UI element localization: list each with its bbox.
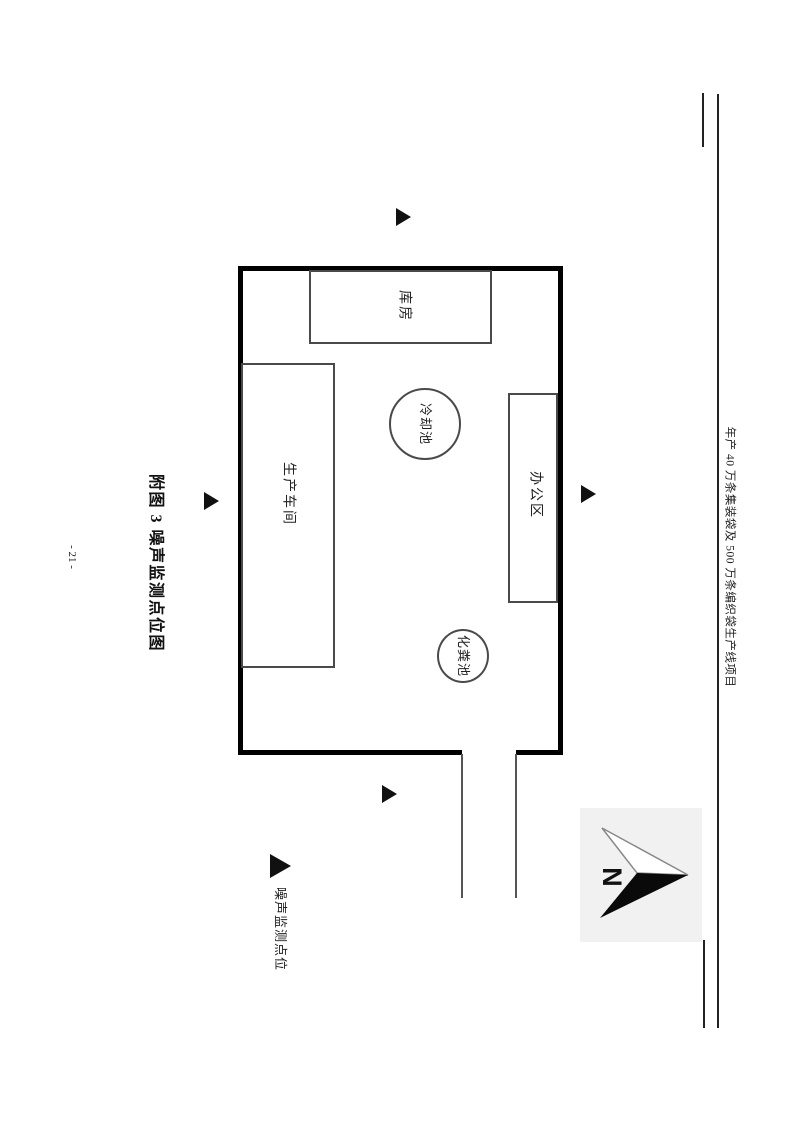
legend-noise-point-icon: [270, 854, 291, 878]
driveway-line-right: [515, 754, 517, 898]
north-arrow: N: [580, 808, 702, 942]
noise-monitoring-point-icon: [382, 785, 397, 803]
north-arrow-icon: N: [580, 808, 702, 942]
legend-label: 噪声监测点位: [273, 887, 287, 971]
footer-rule-bottom-mark: [703, 940, 705, 1028]
noise-monitoring-point-icon: [396, 208, 411, 226]
header-rule-top-mark: [702, 93, 704, 147]
cooling-pool-label: 冷却池: [418, 403, 432, 445]
septic-tank-label: 化粪池: [456, 635, 470, 677]
warehouse-label: 库房: [396, 290, 411, 322]
office-label: 办公区: [527, 471, 542, 519]
project-title: 年产 40 万条集装袋及 500 万条编织袋生产线项目: [723, 427, 736, 688]
noise-monitoring-point-icon: [204, 492, 219, 510]
figure-title: 附图 3 噪声监测点位图: [146, 474, 164, 652]
document-page: 年产 40 万条集装袋及 500 万条编织袋生产线项目 附图 3 噪声监测点位图…: [0, 0, 793, 1122]
workshop-label: 生产车间: [280, 462, 295, 526]
driveway-line-left: [461, 754, 463, 898]
noise-monitoring-point-icon: [581, 485, 596, 503]
north-label: N: [597, 867, 627, 887]
page-number: - 21 -: [66, 545, 78, 569]
header-rule: [717, 94, 719, 1028]
gate-opening: [462, 748, 516, 756]
